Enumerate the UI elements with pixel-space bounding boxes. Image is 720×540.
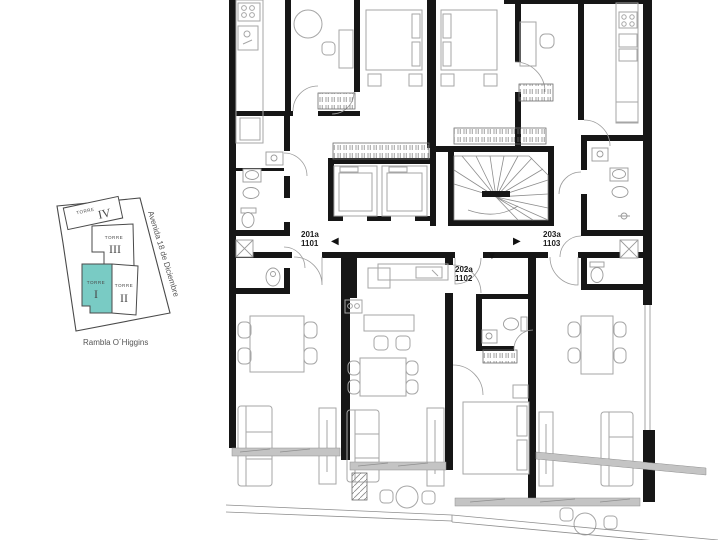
stair-direction-arrow — [468, 206, 518, 214]
chair — [422, 491, 435, 504]
tower-block-i: TORRE I — [82, 264, 112, 313]
counter-return — [368, 268, 390, 288]
floor-plan: 201a 1101 ◀ 203a 1103 ▶ 202a 1102 ▼ — [226, 0, 718, 540]
sliding-door — [232, 448, 340, 456]
window-strip — [645, 305, 650, 430]
tower-numeral: III — [109, 242, 121, 256]
nightstand — [513, 385, 528, 398]
elevators — [334, 166, 427, 216]
stove-icon — [238, 3, 260, 21]
sink-icon — [416, 267, 442, 278]
bedroom-3 — [463, 385, 529, 474]
unit-number: 1103 — [543, 239, 561, 248]
balcony-column — [352, 473, 367, 500]
desk — [520, 22, 536, 66]
entrance-arrow-right-icon: ▶ — [513, 236, 521, 247]
faucet-icon — [618, 213, 630, 219]
tower-label: TORRE — [87, 280, 106, 285]
bed — [463, 402, 529, 474]
unit-number: 1102 — [455, 274, 473, 283]
toilet-tank — [521, 317, 527, 331]
plan-canvas: TORRE IV TORRE III TORRE I TORRE II Aven… — [0, 0, 720, 540]
sink-icon — [619, 34, 637, 61]
tv-cabinet — [319, 408, 336, 484]
floorplan-page: TORRE IV TORRE III TORRE I TORRE II Aven… — [0, 0, 720, 540]
chair — [380, 490, 393, 503]
toilet-icon — [504, 318, 519, 330]
unit-code: 202a — [455, 265, 473, 274]
study-room — [294, 10, 353, 68]
stair-landing-bar — [482, 191, 510, 197]
unit-code: 203a — [543, 230, 561, 239]
nightstand — [441, 74, 454, 86]
bed — [441, 10, 497, 70]
unit-code: 201a — [301, 230, 319, 239]
sofa — [601, 412, 633, 486]
desk-room — [520, 22, 554, 66]
sliding-door — [455, 498, 640, 506]
bedroom-2 — [441, 10, 497, 86]
dining-chairs — [348, 361, 418, 394]
dining-table — [581, 316, 613, 374]
desk — [339, 30, 353, 68]
unit-label-201a: 201a 1101 ◀ — [301, 230, 339, 248]
balcony-table-set — [380, 486, 435, 508]
staircase — [454, 156, 548, 220]
tower-numeral: II — [120, 291, 128, 305]
sink-icon — [238, 26, 258, 50]
bathroom-right-lower — [590, 240, 638, 283]
appliance — [240, 118, 260, 140]
nightstand — [368, 74, 381, 86]
chair — [540, 34, 554, 48]
bidet-icon — [243, 188, 259, 199]
bathroom-left-lower — [236, 240, 280, 286]
toilet-icon — [266, 268, 280, 286]
nightstand — [409, 74, 422, 86]
street-label-rambla: Rambla O´Higgins — [83, 338, 148, 347]
tower-label: TORRE — [105, 235, 124, 240]
bathroom-right-upper — [592, 148, 630, 219]
bathroom-left-upper — [241, 152, 283, 228]
chair — [604, 516, 617, 529]
bidet-icon — [612, 187, 628, 198]
entrance-arrow-down-icon: ▼ — [487, 251, 497, 262]
nightstand — [484, 74, 497, 86]
entrance-arrow-left-icon: ◀ — [331, 236, 339, 247]
tv-cabinet — [427, 408, 444, 486]
tower-numeral: I — [94, 287, 98, 301]
toilet-icon — [591, 268, 603, 283]
round-table — [396, 486, 418, 508]
round-table — [574, 513, 596, 535]
round-table — [294, 10, 322, 38]
unit-number: 1101 — [301, 239, 319, 248]
bedroom-1 — [366, 10, 422, 86]
walls — [229, 0, 655, 502]
stove-icon — [619, 12, 637, 28]
kitchen-island — [364, 315, 414, 331]
bathroom-unit-right — [482, 317, 527, 343]
balcony-table-set — [560, 508, 617, 535]
bed — [366, 10, 422, 70]
balcony-railing — [226, 505, 718, 540]
cabinet — [616, 102, 638, 122]
unit-label-203a: 203a 1103 ▶ — [513, 230, 561, 248]
chair — [560, 508, 573, 521]
dining-table — [360, 358, 406, 396]
tower-block-ii: TORRE II — [112, 264, 138, 315]
dining-chairs — [568, 322, 626, 363]
kitchen-middle-unit — [345, 264, 448, 350]
tower-label: TORRE — [115, 283, 134, 288]
sliding-door — [536, 452, 706, 475]
toilet-tank — [590, 262, 604, 267]
dining-table — [250, 316, 304, 372]
chair — [322, 42, 335, 55]
site-map: TORRE IV TORRE III TORRE I TORRE II Aven… — [57, 196, 181, 347]
unit-label-202a: 202a 1102 ▼ — [455, 251, 497, 283]
sofa — [347, 410, 379, 482]
bar-stools — [374, 336, 410, 350]
toilet-icon — [242, 213, 254, 228]
tv-cabinet — [539, 412, 553, 486]
kitchen-top-right — [616, 3, 638, 123]
living-room-left — [238, 316, 336, 486]
sofa — [238, 406, 272, 486]
kitchen-top-left — [236, 0, 263, 143]
